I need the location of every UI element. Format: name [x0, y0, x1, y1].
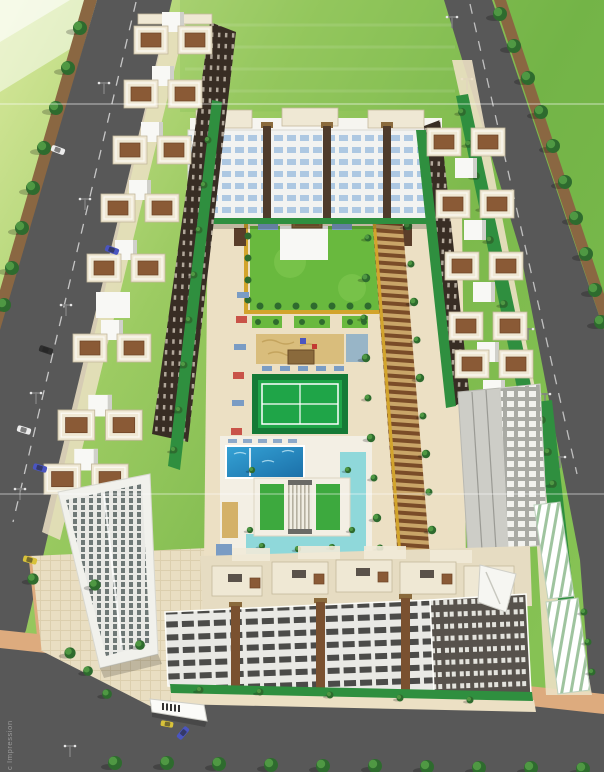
clubhouse-colonnade [288, 482, 312, 532]
sports-court [252, 374, 348, 434]
artistic-impression-rendering: c Impression [0, 0, 604, 772]
garden-plaza [280, 226, 328, 260]
top-apartment-block [188, 108, 442, 229]
clubhouse-lawn [260, 484, 284, 530]
artistic-impression-caption: c Impression [5, 720, 14, 770]
bottom-apartment-block [165, 546, 533, 704]
